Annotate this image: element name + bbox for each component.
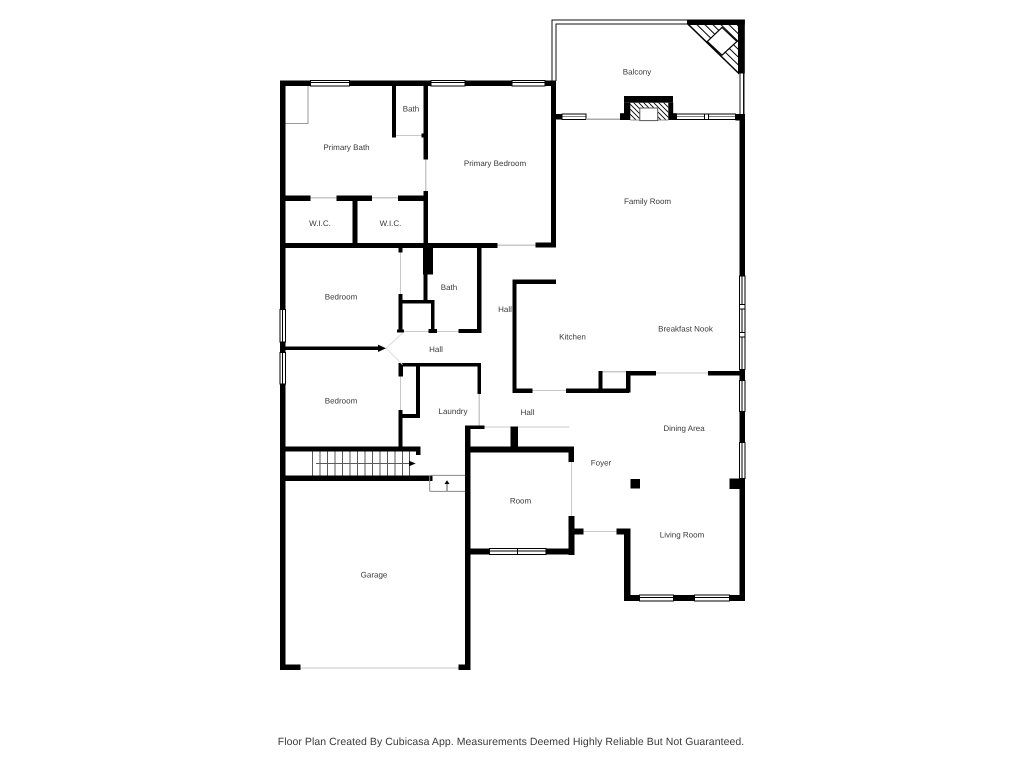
svg-text:Bath: Bath <box>403 104 419 113</box>
svg-text:Primary Bedroom: Primary Bedroom <box>464 159 527 168</box>
svg-text:Bath: Bath <box>441 283 457 292</box>
svg-text:Breakfast Nook: Breakfast Nook <box>658 324 714 333</box>
svg-text:Balcony: Balcony <box>623 67 651 76</box>
svg-text:Foyer: Foyer <box>591 458 612 467</box>
svg-text:Hall: Hall <box>498 305 512 314</box>
svg-text:Living Room: Living Room <box>660 530 705 539</box>
svg-text:Primary Bath: Primary Bath <box>323 143 369 152</box>
svg-text:Room: Room <box>510 496 532 505</box>
svg-text:Dining Area: Dining Area <box>663 424 705 433</box>
svg-text:Bedroom: Bedroom <box>325 292 358 301</box>
svg-text:Kitchen: Kitchen <box>559 332 586 341</box>
svg-text:W.I.C.: W.I.C. <box>309 219 331 228</box>
svg-text:Floor Plan Created By Cubicasa: Floor Plan Created By Cubicasa App. Meas… <box>278 736 745 748</box>
svg-text:Hall: Hall <box>429 345 443 354</box>
svg-text:Laundry: Laundry <box>439 407 468 416</box>
svg-text:Family Room: Family Room <box>624 197 671 206</box>
svg-text:W.I.C.: W.I.C. <box>380 219 402 228</box>
svg-text:Garage: Garage <box>361 570 388 579</box>
svg-text:Bedroom: Bedroom <box>325 396 358 405</box>
svg-text:Hall: Hall <box>521 408 535 417</box>
